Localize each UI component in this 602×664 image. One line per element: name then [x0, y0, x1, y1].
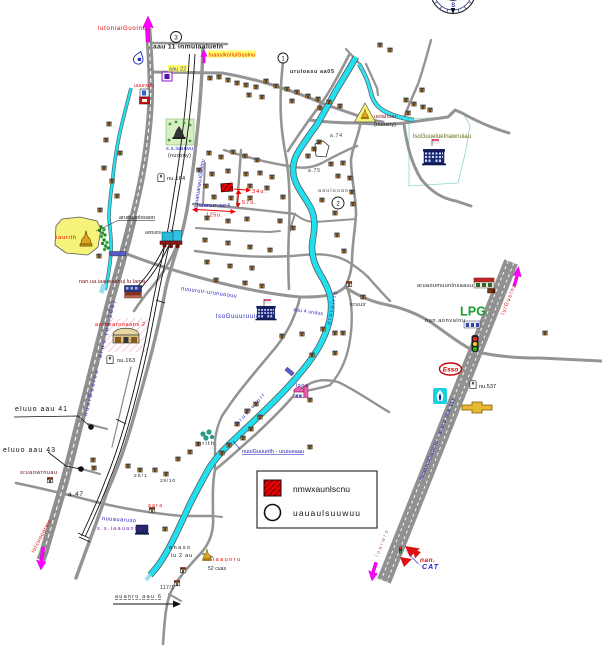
svg-text:sruuir: sruuir	[350, 302, 366, 308]
svg-text:uauaulsuuwuu: uauaulsuuwuu	[293, 508, 360, 518]
svg-text:lu 2 au: lu 2 au	[171, 553, 192, 559]
svg-text:eIuuo aau 43: eIuuo aau 43	[3, 447, 55, 454]
svg-text:117/1: 117/1	[160, 585, 174, 591]
svg-text:s.s.iaanvu: s.s.iaanvu	[166, 146, 193, 152]
svg-text:CAT: CAT	[422, 564, 439, 571]
svg-text:nu.164: nu.164	[167, 176, 185, 182]
svg-text:lutoniaiGuolnu: lutoniaiGuolnu	[98, 26, 146, 32]
svg-text:S: S	[451, 3, 455, 9]
svg-text:nuuiGuuurith - uruiueaau: nuuiGuuurith - uruiueaau	[242, 449, 304, 455]
svg-text:eIuuo aau 41: eIuuo aau 41	[15, 406, 67, 413]
svg-text:nuuuruum aao 4: nuuuruum aao 4	[197, 203, 230, 209]
svg-text:a.75: a.75	[308, 168, 320, 174]
svg-text:(nuoxny): (nuoxny)	[168, 153, 191, 159]
svg-text:urith: urith	[198, 441, 214, 447]
svg-text:nu.163: nu.163	[117, 358, 135, 364]
svg-text:nu.537: nu.537	[479, 384, 496, 390]
svg-text:iaurith: iaurith	[56, 235, 76, 241]
svg-text:nan.aonvalnu: nan.aonvalnu	[425, 318, 465, 324]
svg-text:aauluuao: aauluuao	[318, 188, 348, 194]
svg-text:uolaInuu: uolaInuu	[374, 114, 396, 120]
svg-text:aau 22: aau 22	[169, 67, 186, 73]
svg-text:uruloasu aa05: uruloasu aa05	[290, 69, 334, 75]
svg-text:Esso: Esso	[443, 367, 459, 374]
svg-text:nmwxaunlscnu: nmwxaunlscnu	[293, 484, 350, 494]
svg-text:aau 11 inmuiaalueIn: aau 11 inmuiaalueIn	[153, 44, 223, 51]
svg-text:s.s.iaauanru: s.s.iaauanru	[97, 526, 141, 532]
svg-text:luaaulko/lulGuolnu: luaaulko/lulGuolnu	[209, 53, 255, 59]
svg-text:aaranarooaans 2: aaranarooaans 2	[95, 322, 145, 328]
svg-text:uuurxuu: uuurxuu	[134, 83, 154, 89]
svg-text:nan.ua.iaainuulnuj lu lama: nan.ua.iaainuulnuj lu lama	[79, 279, 146, 285]
svg-text:lsoGuuuruuir: lsoGuuuruuir	[216, 314, 258, 320]
svg-text:lsoa: lsoa	[296, 383, 309, 389]
svg-text:LPG: LPG	[460, 305, 486, 319]
svg-text:nan.: nan.	[420, 557, 435, 564]
svg-text:aonuns: aonuns	[145, 230, 162, 236]
svg-text:a.47: a.47	[68, 491, 83, 498]
svg-text:aruaoumuunlnsaauu: aruaoumuunlnsaauu	[417, 283, 473, 289]
svg-text:29/10: 29/10	[160, 478, 175, 484]
svg-text:lsoGuuelueInawnuiau: lsoGuuelueInawnuiau	[413, 134, 471, 140]
svg-text:52 cuas: 52 cuas	[208, 566, 227, 572]
svg-text:aruouanlssaon: aruouanlssaon	[119, 215, 155, 221]
svg-text:a.74: a.74	[330, 133, 342, 139]
svg-text:(nuoxny): (nuoxny)	[374, 122, 396, 128]
svg-text:sruaowrnuau: sruaowrnuau	[20, 470, 57, 476]
